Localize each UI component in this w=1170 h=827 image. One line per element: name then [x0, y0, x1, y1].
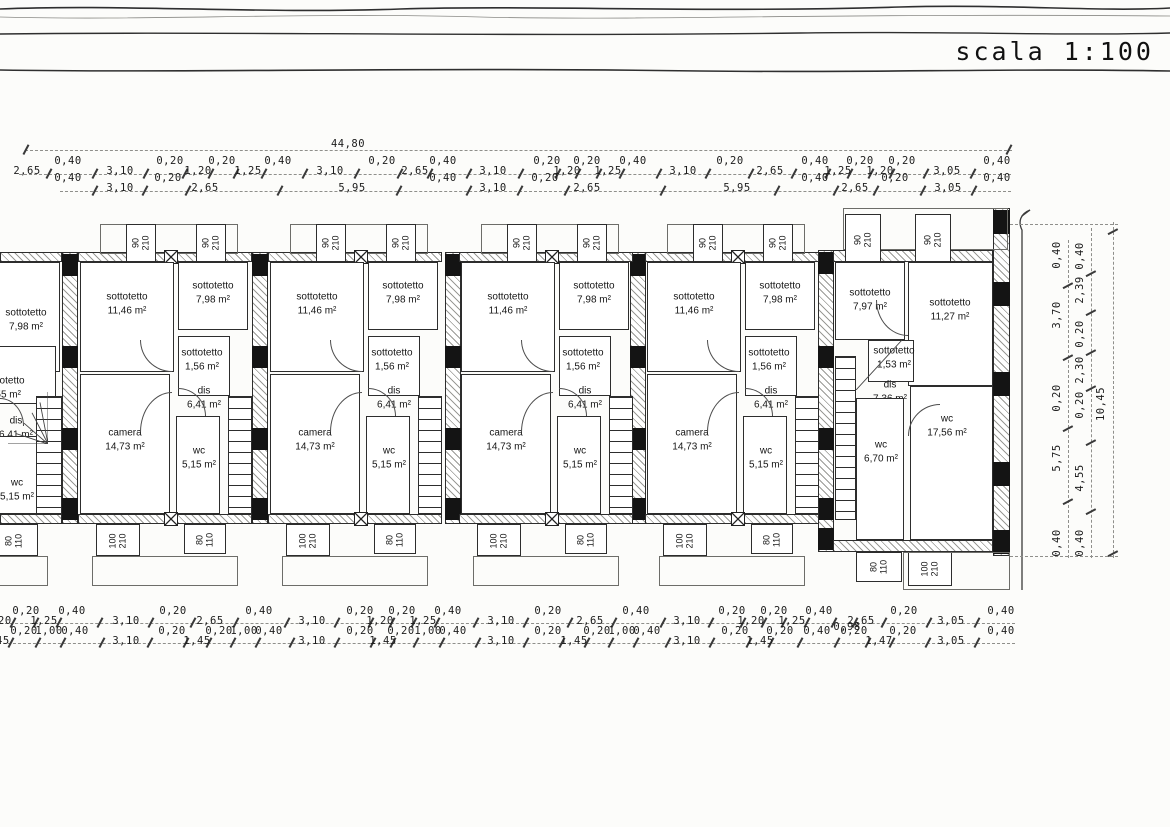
dimension-label: 0,40: [803, 626, 830, 637]
dimension-label: 0,20: [1075, 391, 1086, 418]
dimension-label: 1,00: [35, 626, 62, 637]
dimension-label: 3,10: [673, 616, 700, 627]
dimension-label: 0,20: [1075, 320, 1086, 347]
dimension-label: 1,00: [608, 626, 635, 637]
dimension-label: 3,10: [479, 166, 506, 177]
dimension-label: 3,10: [316, 166, 343, 177]
dimension-label: 3,10: [106, 183, 133, 194]
dimension-label: 2,65: [841, 183, 868, 194]
dimension-annotations: 44,802,650,403,100,201,200,201,250,403,1…: [0, 0, 1170, 827]
dimension-label: 3,05: [937, 616, 964, 627]
dimension-label: 0,20: [889, 626, 916, 637]
dimension-label: 0,40: [58, 606, 85, 617]
dimension-label: 0,40: [983, 173, 1010, 184]
blueprint-sheet: scala 1:100 9021090210sottotetto11,46 m²…: [0, 0, 1170, 827]
dimension-label: 1,47: [865, 636, 892, 647]
right-dimension-total-line: [1113, 222, 1114, 558]
dimension-label: 0,40: [983, 156, 1010, 167]
dimension-label: 0,40: [54, 156, 81, 167]
dimension-label: 0,20: [888, 156, 915, 167]
right-dimension-chain-2-line: [1091, 228, 1092, 558]
overall-height-label: 10,45: [1096, 387, 1107, 421]
dimension-label: 0,40: [1075, 529, 1086, 556]
dimension-label: 0,20: [10, 626, 37, 637]
dimension-label: 0,20: [716, 156, 743, 167]
dimension-label: 0,40: [805, 606, 832, 617]
dimension-label: 2,65: [13, 166, 40, 177]
overall-width-label: 44,80: [327, 139, 369, 150]
dimension-label: 5,75: [1052, 444, 1063, 471]
dimension-label: 0,20: [368, 156, 395, 167]
dimension-label: 0,20: [154, 173, 181, 184]
right-dim-extension-bottom: [1010, 556, 1118, 557]
dimension-label: 0,20: [387, 626, 414, 637]
dimension-label: 3,05: [934, 183, 961, 194]
dimension-label: 3,10: [298, 616, 325, 627]
dimension-label: 1,45: [369, 636, 396, 647]
dimension-label: 0,20: [881, 173, 908, 184]
dimension-label: 2,65: [573, 183, 600, 194]
dimension-label: 0,40: [801, 173, 828, 184]
dimension-label: 0,20: [531, 173, 558, 184]
dimension-label: 0,40: [619, 156, 646, 167]
dimension-label: 0,40: [61, 626, 88, 637]
dimension-label: 3,10: [479, 183, 506, 194]
dimension-label: 0,20: [158, 626, 185, 637]
overall-width-dim-line: [25, 150, 1012, 151]
dimension-label: 2,65: [401, 166, 428, 177]
dimension-label: 2,39: [1075, 276, 1086, 303]
dimension-label: 5,95: [338, 183, 365, 194]
dimension-label: 0,40: [1052, 241, 1063, 268]
dimension-label: 1,45: [0, 636, 10, 647]
dimension-label: 2,30: [1075, 356, 1086, 383]
dimension-label: 0,40: [1075, 242, 1086, 269]
dimension-label: 0,20: [205, 626, 232, 637]
dimension-label: 0,40: [987, 606, 1014, 617]
dimension-label: 1,00: [414, 626, 441, 637]
dimension-label: 0,40: [255, 626, 282, 637]
dimension-label: 0,40: [54, 173, 81, 184]
dimension-label: 0,20: [534, 626, 561, 637]
dimension-label: 0,40: [1052, 529, 1063, 556]
dimension-label: 4,55: [1075, 464, 1086, 491]
dimension-label: 3,10: [669, 166, 696, 177]
dimension-label: 1,00: [230, 626, 257, 637]
dimension-label: 5,95: [723, 183, 750, 194]
dimension-label: 1,25: [594, 166, 621, 177]
dimension-label: 3,05: [933, 166, 960, 177]
dimension-label: 1,45: [560, 636, 587, 647]
dimension-label: 0,40: [987, 626, 1014, 637]
dimension-label: 3,10: [298, 636, 325, 647]
dimension-label: 0,20: [721, 626, 748, 637]
dimension-label: 2,65: [756, 166, 783, 177]
dimension-label: 3,10: [112, 616, 139, 627]
dimension-label: 0,20: [534, 606, 561, 617]
dimension-label: 2,65: [191, 183, 218, 194]
dimension-label: 0,20: [156, 156, 183, 167]
right-dim-extension-top: [1010, 224, 1118, 225]
dimension-label: 1,45: [746, 636, 773, 647]
dimension-label: 1,25: [234, 166, 261, 177]
dimension-label: 0,20: [766, 626, 793, 637]
dimension-label: 0,40: [264, 156, 291, 167]
dimension-label: 0,40: [439, 626, 466, 637]
right-dimension-chain-1-line: [1068, 240, 1069, 558]
dimension-label: 1,45: [183, 636, 210, 647]
dimension-label: 0,40: [245, 606, 272, 617]
dimension-label: 0,40: [429, 156, 456, 167]
dimension-label: 3,10: [487, 616, 514, 627]
dimension-label: 0,40: [633, 626, 660, 637]
dimension-label: 3,10: [673, 636, 700, 647]
dimension-label: 3,05: [937, 636, 964, 647]
dimension-label: 0,20: [1052, 384, 1063, 411]
dimension-label: 3,10: [487, 636, 514, 647]
dimension-label: 3,70: [1052, 301, 1063, 328]
dimension-label: 1,20: [184, 166, 211, 177]
dimension-label: 0,20: [583, 626, 610, 637]
dimension-label: 0,20: [890, 606, 917, 617]
dimension-label: 3,10: [106, 166, 133, 177]
dimension-label: 0,40: [622, 606, 649, 617]
dimension-label: 3,10: [112, 636, 139, 647]
dimension-label: 0,20: [840, 626, 867, 637]
dimension-label: 0,40: [429, 173, 456, 184]
dimension-label: 0,40: [434, 606, 461, 617]
dimension-label: 0,20: [208, 156, 235, 167]
dimension-label: 0,20: [159, 606, 186, 617]
